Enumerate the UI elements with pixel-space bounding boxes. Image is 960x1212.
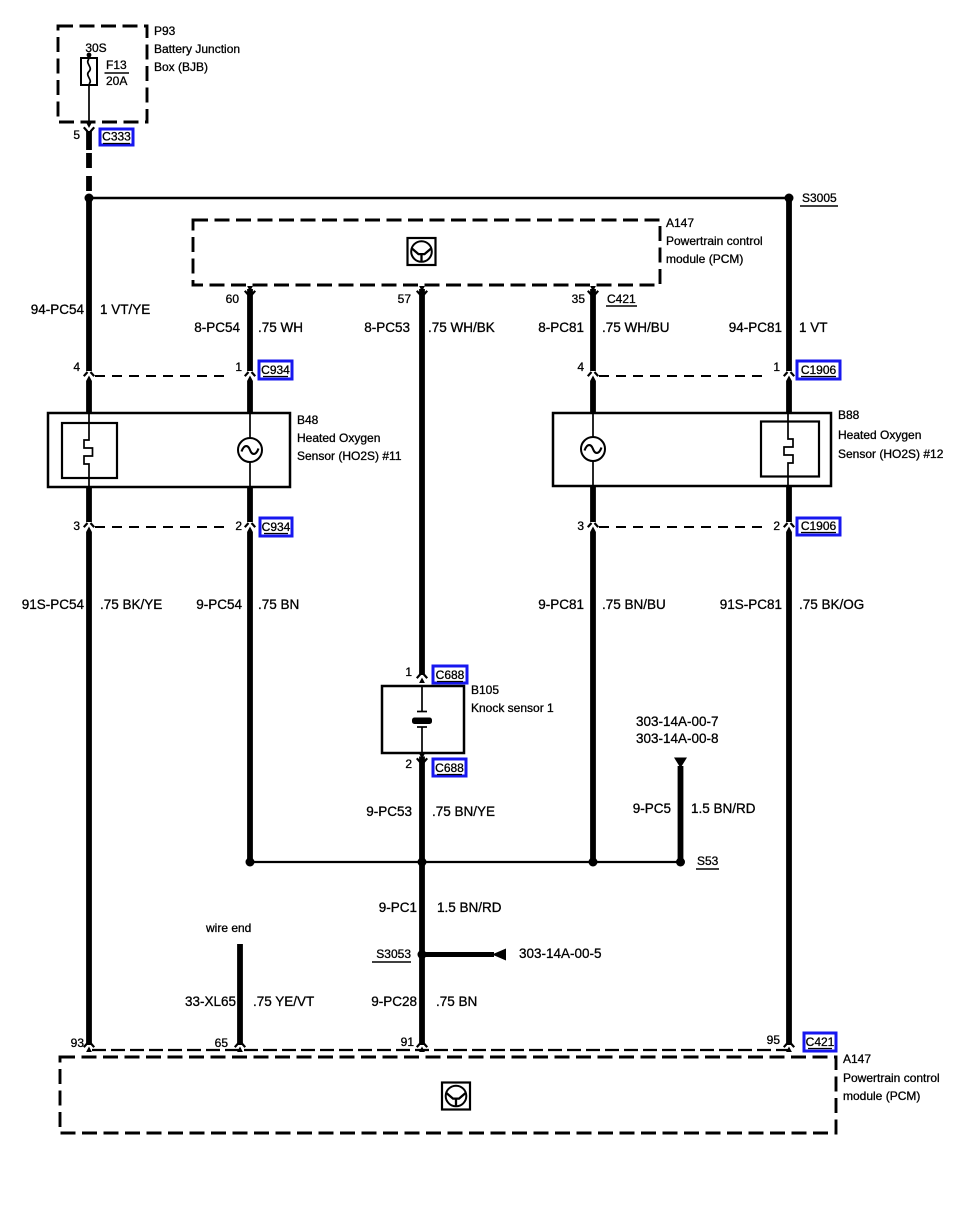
svg-text:1: 1 [405,665,412,679]
svg-text:4: 4 [577,360,584,374]
svg-text:module (PCM): module (PCM) [666,252,743,266]
svg-text:.75 WH/BK: .75 WH/BK [428,320,495,335]
svg-text:2: 2 [235,519,242,533]
svg-text:wire end: wire end [205,921,251,935]
svg-text:.75 WH: .75 WH [258,320,303,335]
svg-text:60: 60 [226,292,240,306]
svg-text:B105: B105 [471,683,499,697]
svg-text:9-PC28: 9-PC28 [371,994,417,1009]
svg-text:C934: C934 [262,520,291,534]
svg-text:module (PCM): module (PCM) [843,1089,920,1103]
svg-text:65: 65 [215,1036,229,1050]
svg-text:.75 WH/BU: .75 WH/BU [602,320,670,335]
svg-text:Heated Oxygen: Heated Oxygen [297,431,380,445]
svg-text:1.5 BN/RD: 1.5 BN/RD [437,900,502,915]
svg-text:9-PC81: 9-PC81 [538,597,584,612]
svg-text:9-PC1: 9-PC1 [379,900,417,915]
svg-text:.75 BK/OG: .75 BK/OG [799,597,864,612]
svg-text:Powertrain control: Powertrain control [666,234,763,248]
svg-text:1.5 BN/RD: 1.5 BN/RD [691,801,756,816]
svg-text:C333: C333 [102,130,131,144]
svg-text:91S-PC54: 91S-PC54 [22,597,85,612]
svg-text:Sensor (HO2S) #12: Sensor (HO2S) #12 [838,447,944,461]
svg-text:91S-PC81: 91S-PC81 [720,597,782,612]
svg-text:20A: 20A [106,74,127,88]
svg-text:C688: C688 [435,761,464,775]
svg-text:1: 1 [773,360,780,374]
svg-text:S3053: S3053 [376,947,411,961]
svg-text:33-XL65: 33-XL65 [185,994,236,1009]
svg-text:.75 YE/VT: .75 YE/VT [253,994,314,1009]
svg-text:94-PC54: 94-PC54 [31,302,85,317]
svg-text:1: 1 [235,360,242,374]
svg-text:A147: A147 [666,216,694,230]
svg-text:C688: C688 [436,668,465,682]
svg-text:B48: B48 [297,413,319,427]
svg-text:303-14A-00-7: 303-14A-00-7 [636,714,719,729]
svg-text:S3005: S3005 [802,191,837,205]
svg-text:2: 2 [773,519,780,533]
svg-text:1 VT/YE: 1 VT/YE [100,302,150,317]
svg-text:C421: C421 [806,1035,835,1049]
svg-text:3: 3 [577,519,584,533]
svg-text:C934: C934 [261,363,290,377]
svg-text:C421: C421 [607,292,636,306]
svg-text:C1906: C1906 [801,519,837,533]
svg-text:Box (BJB): Box (BJB) [154,60,208,74]
svg-text:B88: B88 [838,408,860,422]
svg-text:1 VT: 1 VT [799,320,828,335]
svg-text:.75 BN: .75 BN [258,597,299,612]
svg-text:8-PC54: 8-PC54 [194,320,240,335]
svg-text:8-PC53: 8-PC53 [364,320,410,335]
svg-text:C1906: C1906 [801,363,837,377]
svg-text:8-PC81: 8-PC81 [538,320,584,335]
svg-text:57: 57 [398,292,412,306]
svg-text:4: 4 [73,360,80,374]
svg-text:5: 5 [73,128,80,142]
svg-text:91: 91 [401,1035,415,1049]
svg-text:9-PC53: 9-PC53 [366,804,412,819]
svg-text:95: 95 [767,1033,781,1047]
svg-text:9-PC54: 9-PC54 [196,597,242,612]
svg-text:Knock sensor 1: Knock sensor 1 [471,701,554,715]
svg-text:93: 93 [71,1036,85,1050]
svg-text:35: 35 [572,292,586,306]
svg-text:94-PC81: 94-PC81 [729,320,782,335]
svg-text:A147: A147 [843,1052,871,1066]
svg-text:S53: S53 [697,854,719,868]
svg-text:Powertrain control: Powertrain control [843,1071,940,1085]
svg-text:2: 2 [405,757,412,771]
svg-text:303-14A-00-8: 303-14A-00-8 [636,731,719,746]
svg-text:3: 3 [73,519,80,533]
svg-text:P93: P93 [154,24,176,38]
svg-text:.75 BK/YE: .75 BK/YE [100,597,162,612]
svg-text:.75 BN/BU: .75 BN/BU [602,597,666,612]
svg-text:9-PC5: 9-PC5 [633,801,671,816]
svg-text:.75 BN: .75 BN [436,994,477,1009]
svg-text:F13: F13 [106,58,127,72]
svg-text:303-14A-00-5: 303-14A-00-5 [519,946,602,961]
svg-text:Heated Oxygen: Heated Oxygen [838,428,921,442]
svg-text:Sensor (HO2S) #11: Sensor (HO2S) #11 [297,449,402,463]
svg-text:.75 BN/YE: .75 BN/YE [432,804,495,819]
svg-text:Battery Junction: Battery Junction [154,42,240,56]
